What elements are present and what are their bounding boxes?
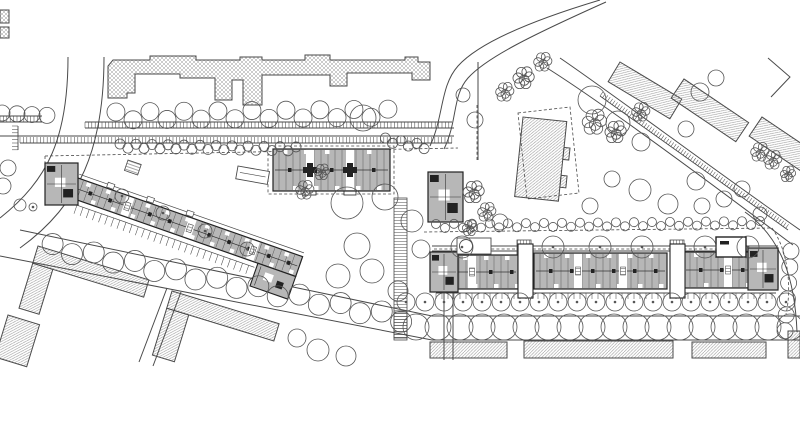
context-bar-ne-1 [608, 62, 682, 119]
context-building-center [515, 117, 573, 202]
road-branch-a [430, 0, 600, 146]
residential-buildings [45, 149, 778, 299]
play-court [716, 237, 746, 257]
road-ne-corner [768, 58, 790, 97]
site-plan [0, 0, 800, 437]
head-building-east [748, 248, 778, 290]
court-mark [720, 241, 729, 245]
context-building-se-edge [788, 331, 800, 358]
context-building-south-3 [692, 342, 766, 358]
context-building-north [108, 55, 430, 105]
parking-north-lower [20, 137, 452, 143]
context-l-building-sw-2 [152, 291, 279, 388]
stair-connector-1 [518, 244, 533, 298]
context-bar-ne-3 [749, 117, 800, 176]
context-building-south-2 [524, 341, 673, 358]
parking-west-edge [12, 126, 18, 150]
context-bar-ne-2 [671, 79, 749, 142]
ramp-west-head [124, 160, 141, 175]
head-building-west [45, 163, 78, 205]
site-plan-svg [0, 0, 800, 437]
residential-slab-mid [273, 149, 390, 195]
garden-shed [236, 166, 270, 184]
context-building-edge-a [0, 10, 9, 23]
road-west-right [20, 57, 104, 248]
context-building-edge-b [0, 27, 9, 38]
steps-path-center-south [394, 312, 407, 340]
context-building-sw-small [0, 315, 40, 367]
residential-slab-east-2 [534, 253, 667, 289]
stair-connector-2 [670, 244, 685, 298]
context-building-south-1 [430, 342, 507, 358]
head-building-east-west-end [430, 252, 458, 292]
tower-building-center [428, 172, 463, 222]
